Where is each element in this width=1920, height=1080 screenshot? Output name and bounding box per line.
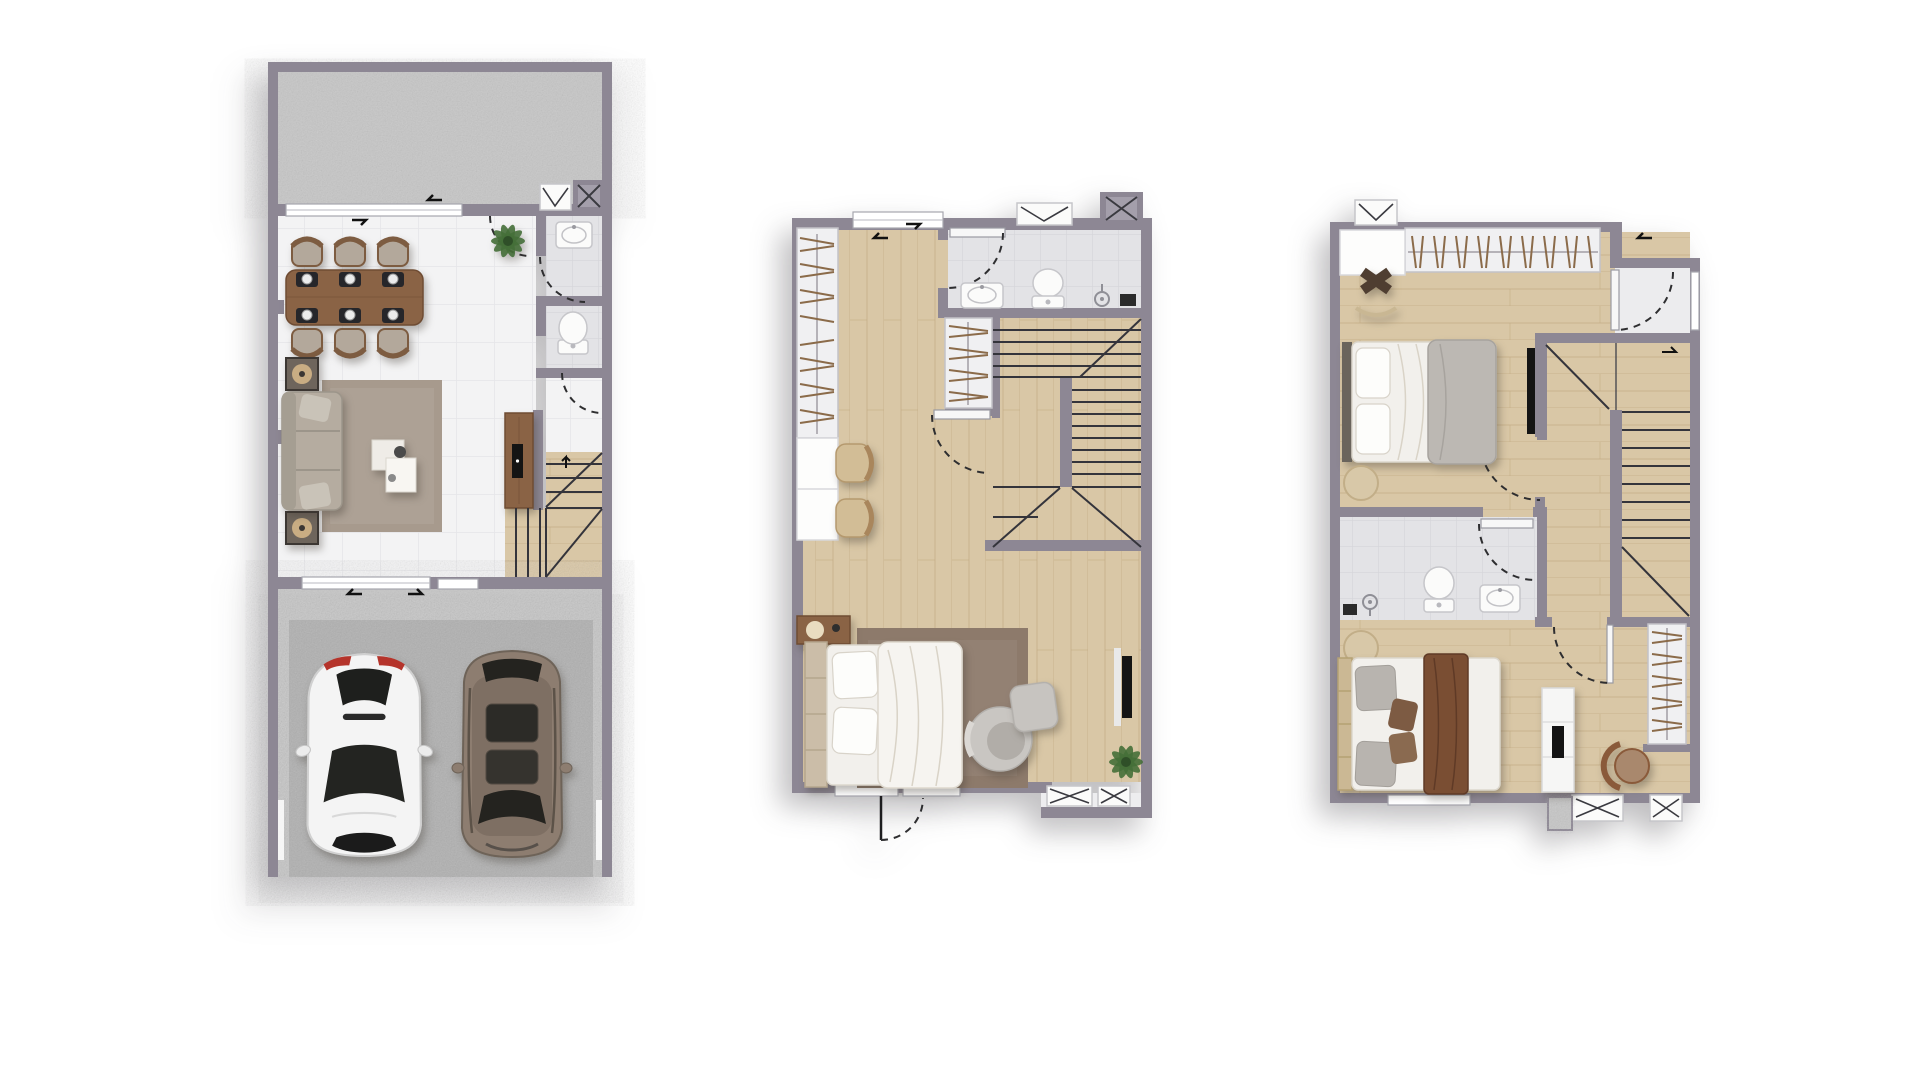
hall-closet xyxy=(945,318,992,408)
washbasin xyxy=(556,222,592,248)
side-table xyxy=(286,512,318,544)
headboard xyxy=(1342,342,1352,462)
master-window xyxy=(1388,795,1470,805)
car-suv xyxy=(452,651,572,857)
stair-floor xyxy=(546,452,602,577)
dining-chair xyxy=(378,329,408,356)
bath-mat xyxy=(1120,294,1136,306)
accent-pillow xyxy=(1388,731,1418,764)
living-garage-window-2 xyxy=(438,579,478,589)
wall-pilaster xyxy=(268,300,284,314)
dining-chair xyxy=(335,239,365,266)
toilet xyxy=(1424,567,1454,612)
hallway-floor xyxy=(546,378,602,452)
ottoman xyxy=(1009,681,1059,733)
wardrobe xyxy=(797,228,838,438)
pillow xyxy=(1355,665,1397,711)
nightstand xyxy=(797,616,850,644)
dining-chair xyxy=(292,239,322,266)
vanity-desk xyxy=(797,438,838,540)
bathroom-door-leaf xyxy=(1481,519,1533,528)
double-bed xyxy=(805,642,962,788)
dining-chair xyxy=(292,329,322,356)
wardrobe xyxy=(1405,228,1600,272)
wall-tv xyxy=(1527,348,1535,434)
vent-shaft xyxy=(573,180,605,212)
landing-door-leaf xyxy=(1611,270,1619,330)
dining-chair xyxy=(335,329,365,356)
bath-mat xyxy=(1343,604,1357,615)
media-console xyxy=(505,413,533,508)
vent-window xyxy=(1017,203,1072,225)
desk xyxy=(1340,230,1405,275)
bedroom-door-leaf xyxy=(934,410,990,419)
wall-tv xyxy=(1114,648,1132,726)
duvet xyxy=(878,642,962,788)
desk-chair xyxy=(836,499,872,537)
car-sports xyxy=(294,654,434,856)
pillow xyxy=(832,651,878,699)
vent-window xyxy=(1572,795,1623,821)
toilet xyxy=(558,312,588,354)
first-floor-plan xyxy=(268,62,612,877)
floorplan-canvas xyxy=(0,0,1920,1080)
dining-chair xyxy=(378,239,408,266)
master-bed xyxy=(1338,654,1500,794)
floorplan-svg xyxy=(0,0,1920,1080)
pillow xyxy=(832,707,878,755)
toilet xyxy=(1032,269,1064,308)
throw-pillow xyxy=(298,482,332,511)
master-door-leaf xyxy=(1607,625,1613,683)
pillow xyxy=(1356,348,1390,398)
washbasin xyxy=(961,283,1003,308)
bathroom-door-leaf xyxy=(950,228,1005,237)
side-table xyxy=(286,358,318,390)
vent-window xyxy=(1047,786,1092,806)
duvet xyxy=(1428,340,1496,464)
round-rug xyxy=(1344,466,1378,500)
vent-window xyxy=(1650,795,1682,821)
garage-track xyxy=(596,800,602,860)
desk-chair xyxy=(836,444,872,482)
exterior-door-arc xyxy=(881,798,923,840)
guest-bed xyxy=(1342,340,1496,464)
balcony-ledge xyxy=(1548,797,1572,830)
landing-floor xyxy=(1615,268,1690,333)
tv xyxy=(1552,726,1564,758)
tv-cabinet xyxy=(1542,688,1574,792)
second-floor-plan xyxy=(792,192,1152,840)
pillow xyxy=(1356,404,1390,454)
garage-track xyxy=(278,800,284,860)
bed-runner xyxy=(1424,654,1468,794)
vent-window xyxy=(1098,786,1130,806)
vent-window xyxy=(1355,200,1397,225)
washbasin xyxy=(1480,585,1520,612)
vent-shaft xyxy=(1100,192,1143,225)
landing-window xyxy=(1691,272,1699,330)
vent-window xyxy=(540,184,571,210)
sofa xyxy=(282,392,342,510)
third-floor-plan xyxy=(1330,200,1700,830)
wardrobe xyxy=(1648,624,1686,744)
dining-set xyxy=(286,239,423,356)
